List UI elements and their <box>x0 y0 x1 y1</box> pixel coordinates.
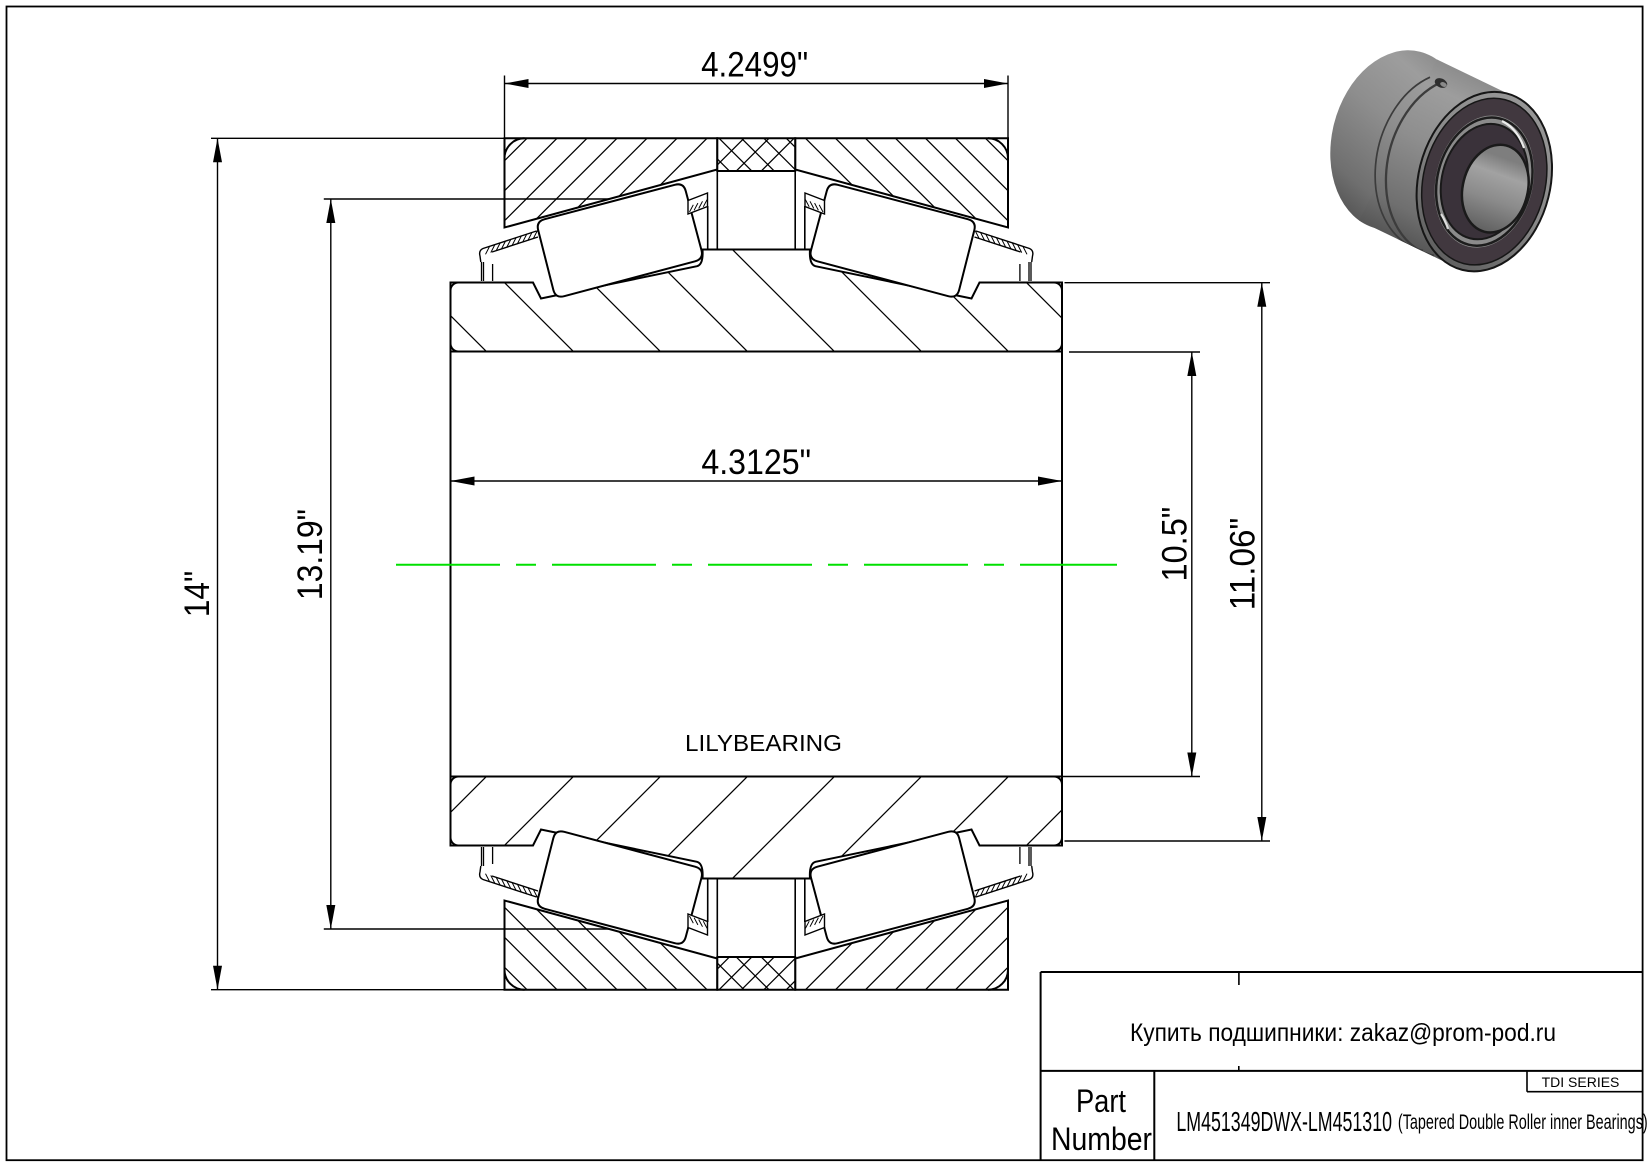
svg-text:13.19": 13.19" <box>291 509 330 600</box>
svg-text:Number: Number <box>1051 1121 1152 1157</box>
svg-text:(Tapered Double Roller inner B: (Tapered Double Roller inner Bearings) <box>1398 1110 1648 1134</box>
svg-text:LILYBEARING: LILYBEARING <box>685 730 842 756</box>
svg-text:10.5": 10.5" <box>1156 507 1195 582</box>
svg-text:4.3125": 4.3125" <box>701 443 811 482</box>
svg-text:14": 14" <box>178 571 217 617</box>
svg-text:LM451349DWX-LM451310: LM451349DWX-LM451310 <box>1176 1106 1392 1137</box>
svg-text:11.06": 11.06" <box>1224 518 1263 611</box>
svg-text:4.2499": 4.2499" <box>701 46 808 85</box>
svg-text:Part: Part <box>1076 1083 1126 1119</box>
svg-text:Купить подшипники: zakaz@prom-: Купить подшипники: zakaz@prom-pod.ru <box>1130 1020 1556 1047</box>
svg-text:TDI SERIES: TDI SERIES <box>1542 1074 1620 1090</box>
